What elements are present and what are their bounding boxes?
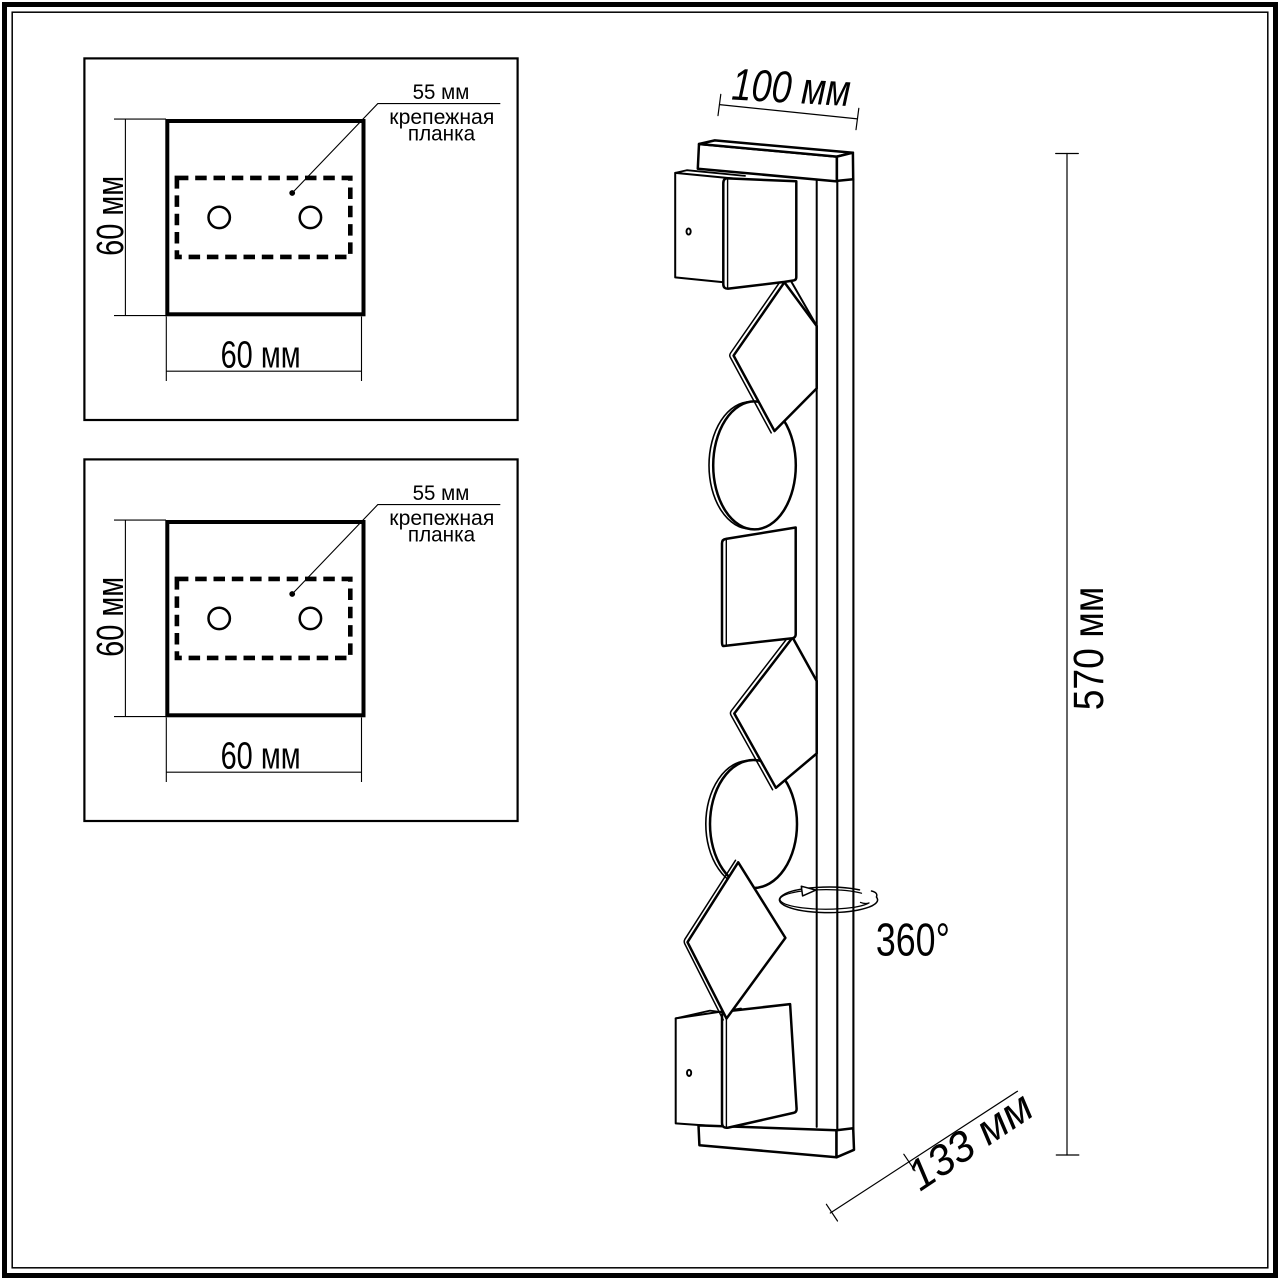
svg-text:60 мм: 60 мм (90, 577, 132, 657)
svg-text:60 мм: 60 мм (221, 735, 301, 777)
svg-text:55 мм: 55 мм (413, 482, 470, 505)
svg-text:360°: 360° (876, 914, 950, 966)
svg-text:60 мм: 60 мм (90, 176, 132, 256)
svg-text:570 мм: 570 мм (1066, 587, 1113, 711)
svg-text:60 мм: 60 мм (221, 334, 301, 376)
svg-text:планка: планка (408, 524, 476, 547)
svg-text:55 мм: 55 мм (413, 81, 470, 104)
svg-text:планка: планка (408, 123, 476, 146)
svg-text:100 мм: 100 мм (730, 59, 852, 117)
